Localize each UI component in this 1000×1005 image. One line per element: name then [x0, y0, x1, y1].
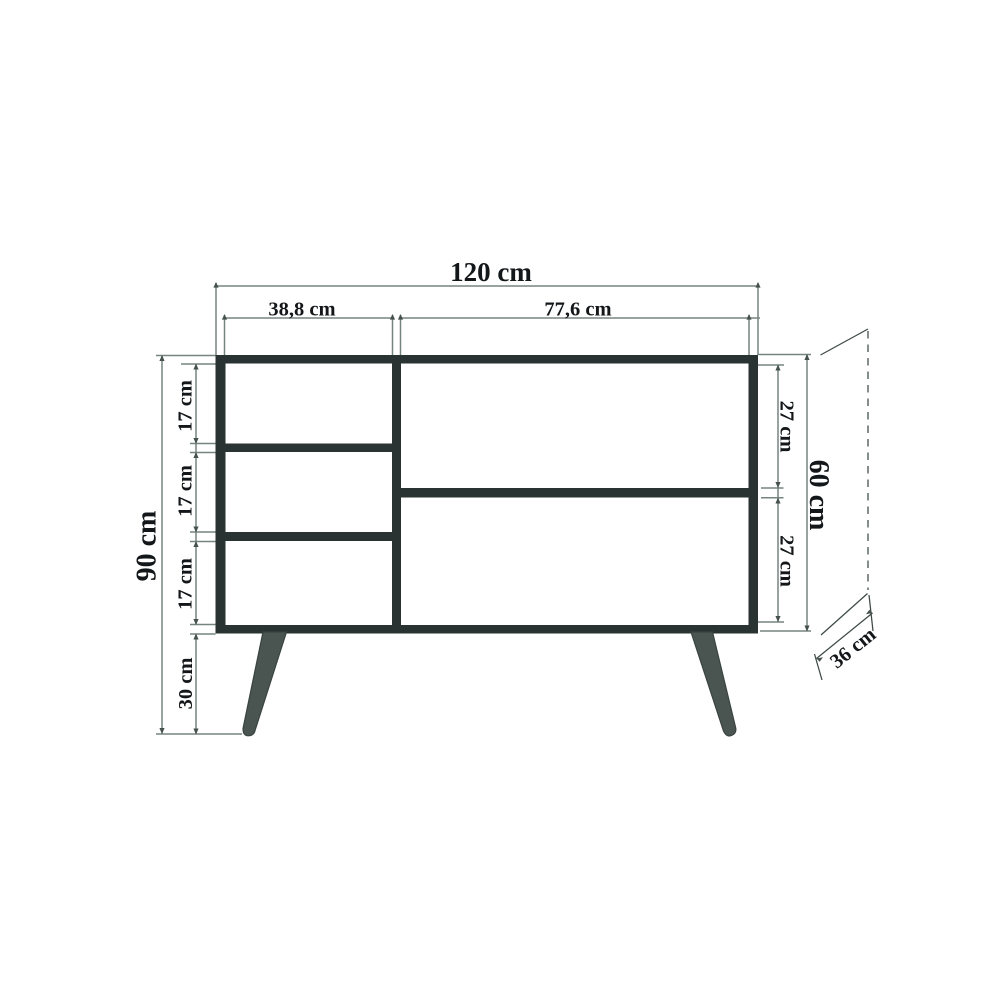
svg-text:90 cm: 90 cm [132, 511, 163, 582]
svg-text:120 cm: 120 cm [450, 257, 532, 287]
svg-text:60 cm: 60 cm [803, 460, 834, 531]
svg-text:17 cm: 17 cm [175, 380, 197, 432]
svg-text:30 cm: 30 cm [175, 658, 197, 710]
svg-text:17 cm: 17 cm [175, 465, 197, 517]
svg-text:27 cm: 27 cm [776, 535, 798, 587]
svg-text:17 cm: 17 cm [175, 558, 197, 610]
svg-text:38,8 cm: 38,8 cm [268, 299, 335, 321]
svg-text:27 cm: 27 cm [776, 401, 798, 453]
svg-text:77,6 cm: 77,6 cm [544, 299, 611, 321]
